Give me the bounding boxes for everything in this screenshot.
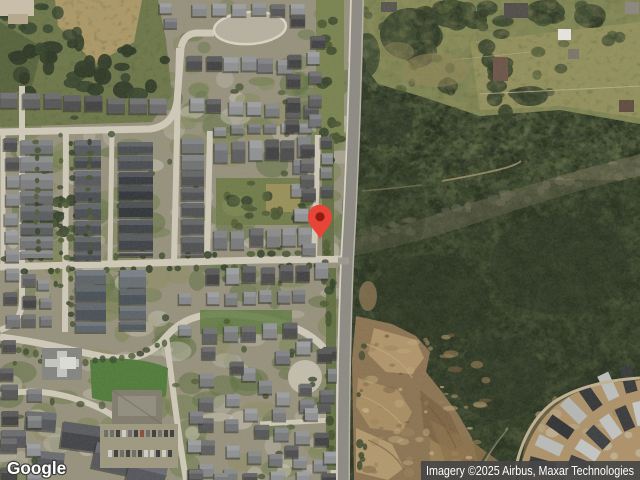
svg-text:Google: Google — [7, 458, 66, 478]
svg-text:Imagery ©2025 Airbus, Maxar Te: Imagery ©2025 Airbus, Maxar Technologies — [426, 464, 634, 478]
